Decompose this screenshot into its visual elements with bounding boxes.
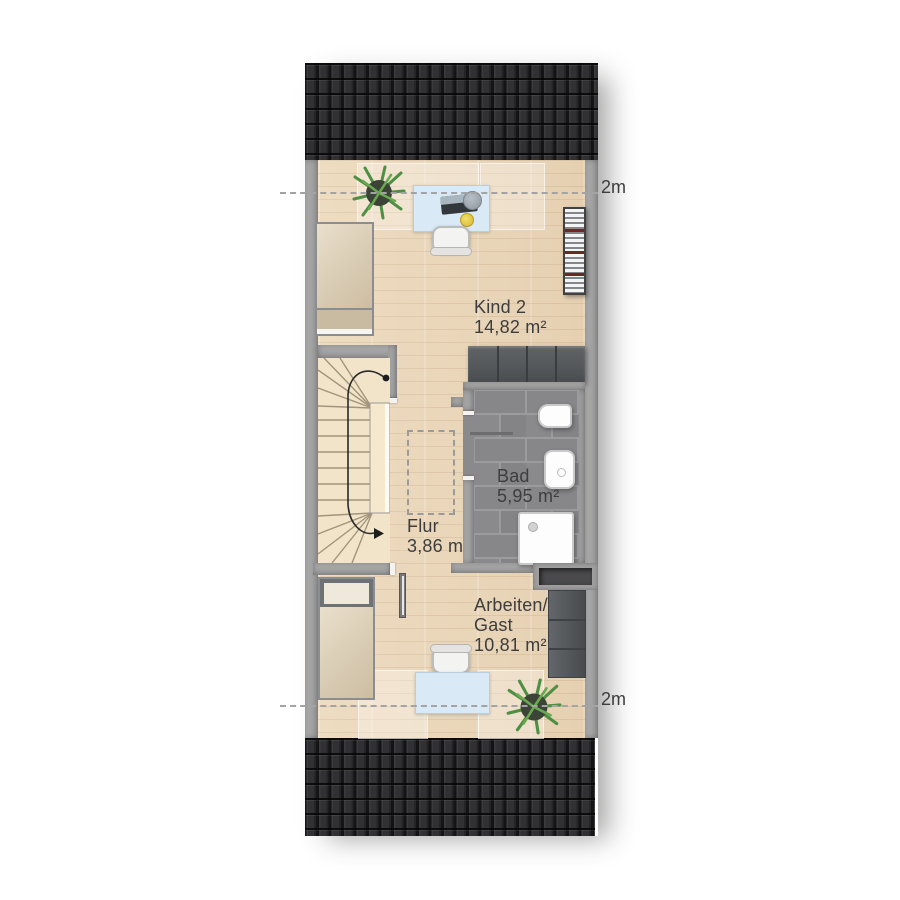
niche-shelf bbox=[533, 563, 598, 590]
bath-wall-left-upper bbox=[463, 390, 474, 411]
bed-arbeiten-headboard bbox=[320, 579, 373, 607]
bed-kind2-foot bbox=[317, 308, 372, 331]
roof-top bbox=[305, 63, 598, 160]
room-area-arbeiten: 10,81 m² bbox=[474, 635, 548, 655]
staircase bbox=[318, 358, 390, 563]
desk-arbeiten bbox=[415, 672, 490, 714]
chair-kind2 bbox=[432, 226, 470, 253]
roof-bottom bbox=[305, 738, 595, 836]
niche-shelf-interior bbox=[539, 568, 592, 585]
toilet-icon bbox=[538, 404, 572, 428]
room-name-arbeiten-2: Gast bbox=[474, 615, 548, 635]
floor-body: Kind 2 14,82 m² bbox=[305, 160, 598, 738]
floorplan-canvas: Kind 2 14,82 m² bbox=[0, 0, 900, 900]
bed-kind2-mattress bbox=[317, 224, 372, 308]
bath-wall-stub bbox=[451, 397, 463, 407]
room-name-flur: Flur bbox=[407, 516, 469, 536]
plant-icon-bottom bbox=[505, 678, 563, 736]
height-label-top: 2m bbox=[601, 177, 626, 198]
room-label-arbeiten: Arbeiten/ Gast 10,81 m² bbox=[474, 595, 548, 655]
height-label-bottom: 2m bbox=[601, 689, 626, 710]
exterior-wall-right bbox=[585, 160, 598, 738]
door-arbeiten bbox=[399, 573, 406, 618]
bath-wall-right bbox=[579, 390, 585, 563]
bed-kind2 bbox=[315, 222, 374, 336]
bath-door-jamb-upper bbox=[463, 411, 474, 415]
chair-kind2-back bbox=[430, 247, 472, 256]
sofa-arbeiten bbox=[548, 590, 586, 678]
bed-arbeiten-mattress bbox=[320, 607, 373, 698]
bed-arbeiten-pillow bbox=[324, 583, 369, 604]
shower-icon bbox=[518, 512, 574, 565]
room-area-flur: 3,86 m² bbox=[407, 536, 469, 556]
room-area-bad: 5,95 m² bbox=[497, 486, 559, 506]
room-name-bad: Bad bbox=[497, 466, 559, 486]
bed-arbeiten bbox=[318, 577, 375, 700]
radiator-icon bbox=[563, 207, 586, 295]
bath-door-threshold bbox=[463, 414, 474, 476]
flur-dashed-zone bbox=[407, 430, 455, 515]
room-area-kind2: 14,82 m² bbox=[474, 317, 547, 337]
height-line-bottom bbox=[280, 705, 598, 707]
stair-wall-top bbox=[318, 345, 397, 358]
room-label-bad: Bad 5,95 m² bbox=[497, 466, 559, 506]
room-name-kind2: Kind 2 bbox=[474, 297, 547, 317]
stair-wall-bottom bbox=[313, 563, 390, 575]
wardrobe-kind2 bbox=[468, 346, 585, 383]
bed-kind2-board bbox=[317, 329, 372, 334]
bath-wall-left-lower bbox=[463, 480, 474, 563]
shower-drain bbox=[528, 522, 538, 532]
chair-arbeiten bbox=[432, 647, 470, 674]
stair-wall-bottom-cap bbox=[390, 563, 395, 575]
desk-accessory-icon bbox=[460, 213, 474, 227]
height-line-top bbox=[280, 192, 598, 194]
room-name-arbeiten-1: Arbeiten/ bbox=[474, 595, 548, 615]
room-label-kind2: Kind 2 14,82 m² bbox=[474, 297, 547, 337]
room-label-flur: Flur 3,86 m² bbox=[407, 516, 469, 556]
towel-bar-icon bbox=[470, 432, 513, 435]
building-outline: Kind 2 14,82 m² bbox=[305, 63, 598, 836]
chair-arbeiten-back bbox=[430, 644, 472, 653]
bath-wall-top bbox=[463, 382, 585, 390]
